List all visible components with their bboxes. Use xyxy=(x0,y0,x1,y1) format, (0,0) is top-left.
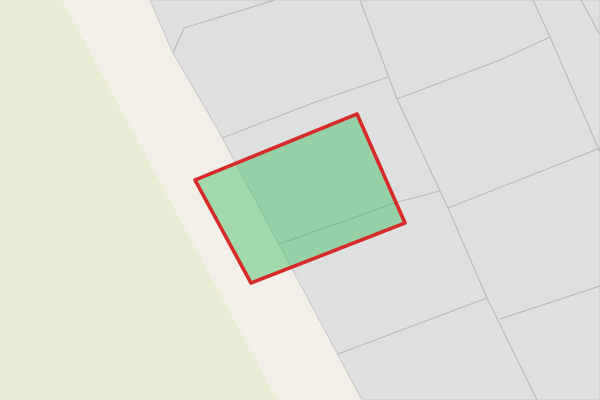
map-svg[interactable] xyxy=(0,0,600,400)
map-viewport[interactable] xyxy=(0,0,600,400)
